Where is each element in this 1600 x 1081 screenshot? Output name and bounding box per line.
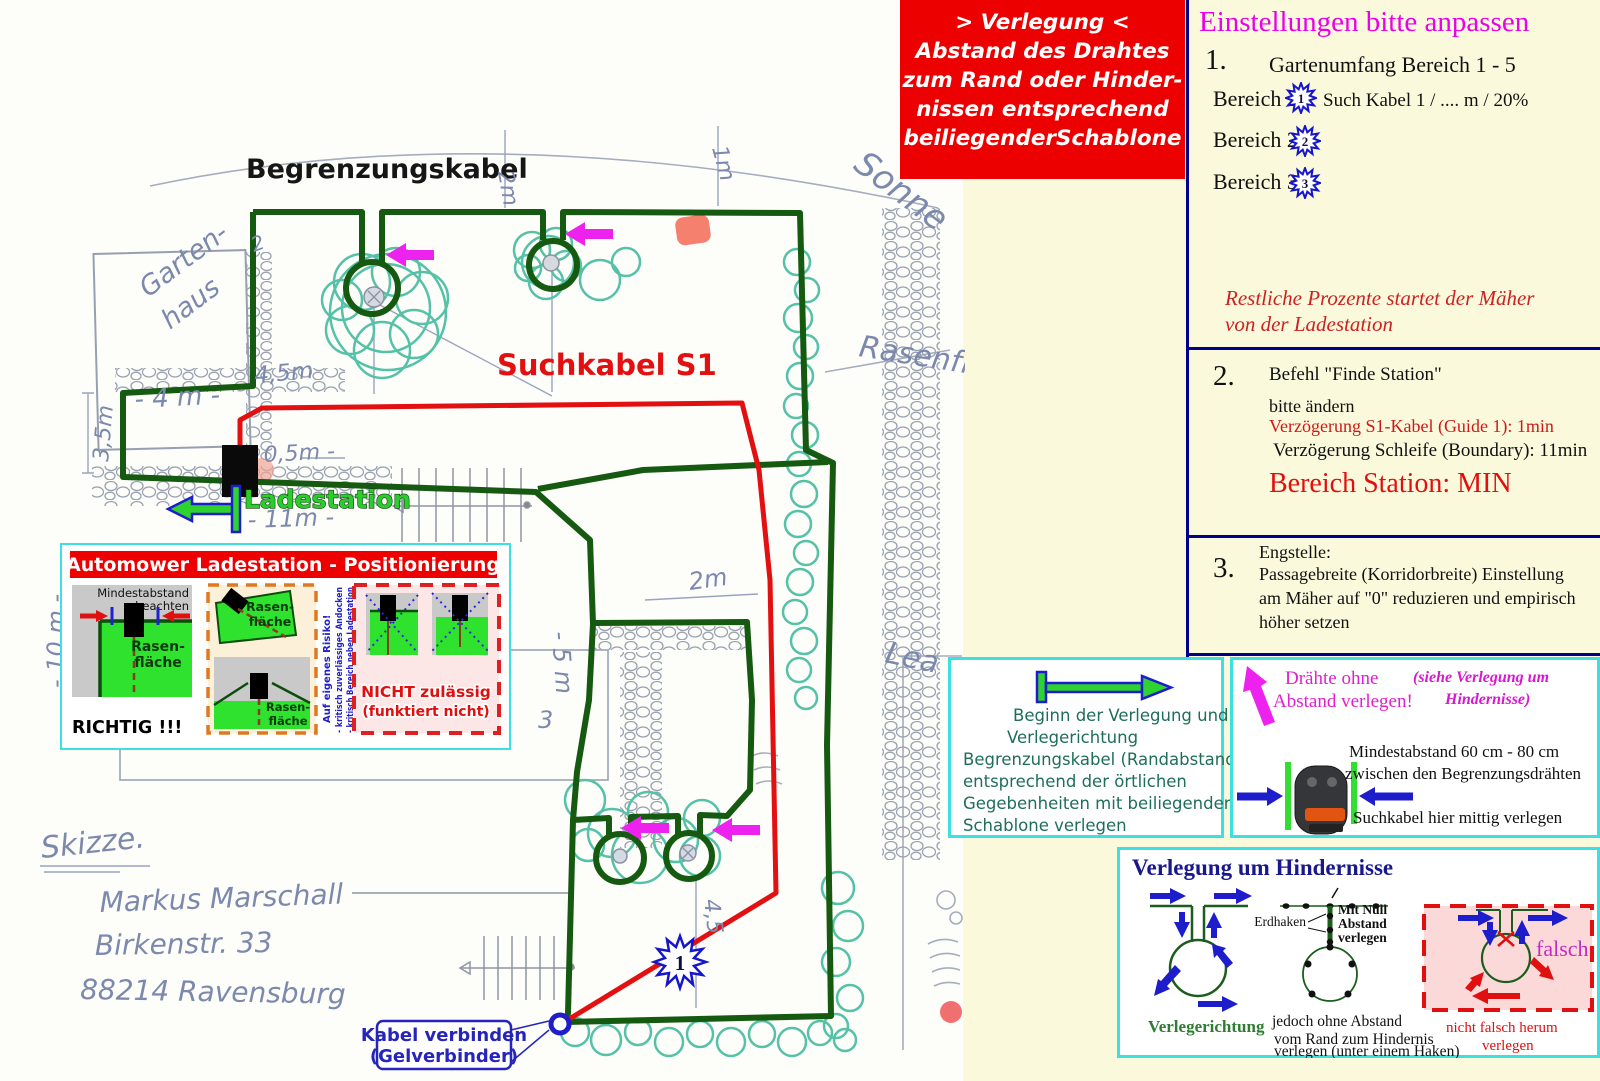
section1-number: 1. xyxy=(1205,44,1227,77)
svg-text:88214 Ravensburg: 88214 Ravensburg xyxy=(80,973,346,1011)
wirebox-aside1: (siehe Verlegung um xyxy=(1413,669,1549,687)
verlegerichtung-label: Verlegerichtung xyxy=(1148,1017,1265,1036)
svg-text:- kritisch zuverlässiges Andoc: - kritisch zuverlässiges Andocken xyxy=(335,587,345,733)
section3-line1: Engstelle: xyxy=(1259,542,1331,563)
connector-label-line1: Kabel verbinden xyxy=(361,1025,527,1046)
wirebox-suchkabel-note: Suchkabel hier mittig verlegen xyxy=(1353,808,1562,828)
start-arrow-icon xyxy=(1035,670,1175,706)
svg-text:2m: 2m xyxy=(492,169,523,208)
note-line: Abstand des Drahtes xyxy=(900,37,1185,66)
connector-label-line2: (Gelverbinder) xyxy=(370,1046,518,1067)
erdhaken-label: Erdhaken xyxy=(1254,914,1306,929)
svg-text:Rasen-: Rasen- xyxy=(266,700,310,714)
bereich1-star-icon: 1 xyxy=(1285,82,1317,114)
positioning-title: Automower Ladestation - Positionierung xyxy=(66,554,500,576)
verdict-nicht-zulaessig: NICHT zulässig xyxy=(361,683,491,701)
beginbox-line3: Begrenzungskabel (Randabstand) xyxy=(963,750,1242,769)
verdict-funktiert-nicht: (funktiert nicht) xyxy=(362,704,489,720)
wirebox-aside2: Hindernisse) xyxy=(1445,691,1530,709)
settings-section-3: 3. Engstelle: Passagebreite (Korridorbre… xyxy=(1189,538,1600,656)
pebble-paths xyxy=(92,208,940,860)
bereich2-star-icon: 2 xyxy=(1289,125,1321,157)
positioning-diagrams: Automower Ladestation - Positionierung M… xyxy=(62,545,505,744)
wirebox-magenta2: Abstand verlegen! xyxy=(1273,691,1413,713)
svg-text:nicht falsch herum: nicht falsch herum xyxy=(1446,1020,1558,1036)
obstacle-correct-diagram: Verlegerichtung xyxy=(1148,888,1265,1036)
boundary-cable-label: Begrenzungskabel xyxy=(246,154,528,185)
svg-text:- 5 m: - 5 m xyxy=(546,630,578,694)
wirebox-distance2: zwischen den Begrenzungsdrähten xyxy=(1345,764,1581,784)
settings-section-2: 2. Befehl "Finde Station" bitte ändern V… xyxy=(1189,350,1600,538)
beginbox-line4: entsprechend der örtlichen xyxy=(963,772,1187,791)
right-arrow-icon xyxy=(1237,787,1283,806)
svg-text:Rasen-: Rasen- xyxy=(246,599,294,614)
mower-image xyxy=(1295,766,1347,834)
obstacles-box: Verlegung um Hindernisse Verlegerichtung xyxy=(1117,847,1600,1058)
svg-text:Birkenstr. 33: Birkenstr. 33 xyxy=(95,926,273,962)
svg-text:jedoch ohne Abstand: jedoch ohne Abstand xyxy=(1271,1013,1402,1030)
falsch-label: falsch xyxy=(1536,936,1589,961)
svg-text:3: 3 xyxy=(1302,176,1309,191)
up-left-arrow-icon xyxy=(1243,666,1275,726)
section3-number: 3. xyxy=(1213,552,1235,585)
section2-bereich-station: Bereich Station: MIN xyxy=(1269,468,1512,500)
wire-spacing-box: Drähte ohne Abstand verlegen! (siehe Ver… xyxy=(1230,657,1600,838)
svg-text:Markus Marschall: Markus Marschall xyxy=(99,878,344,919)
settings-section-1: Einstellungen bitte anpassen 1. Gartenum… xyxy=(1189,0,1600,350)
beginbox-line5: Gegebenheiten mit beiliegender xyxy=(963,794,1231,813)
obstacles-title: Verlegung um Hindernisse xyxy=(1132,855,1393,881)
left-arrow-icon xyxy=(1359,787,1413,806)
section1-heading: Gartenumfang Bereich 1 - 5 xyxy=(1269,52,1516,78)
scanned-garden-plan: 1 Kabel verbinden (Gelverbinder) Begrenz… xyxy=(0,0,1600,1081)
garden-sketch: 1 Kabel verbinden (Gelverbinder) Begrenz… xyxy=(0,0,965,1081)
verdict-richtig: RICHTIG !!! xyxy=(72,718,182,738)
beginbox-line1: Beginn der Verlegung und xyxy=(1013,706,1229,725)
svg-text:Mit Null: Mit Null xyxy=(1338,902,1387,917)
section2-heading: Befehl "Finde Station" xyxy=(1269,364,1442,386)
beginbox-line2: Verlegerichtung xyxy=(1007,728,1138,747)
wirebox-magenta1: Drähte ohne xyxy=(1285,668,1378,690)
svg-text:2: 2 xyxy=(1302,134,1309,149)
svg-text:verlegen (unter einem Haken): verlegen (unter einem Haken) xyxy=(1274,1043,1459,1058)
bereich2-label: Bereich 2 xyxy=(1213,127,1298,153)
cable-connector: Kabel verbinden (Gelverbinder) xyxy=(361,1015,569,1069)
stairs-lower xyxy=(352,893,575,1000)
bereich1-value: Such Kabel 1 / .... m / 20% xyxy=(1323,90,1528,112)
settings-panel: Einstellungen bitte anpassen 1. Gartenum… xyxy=(1186,0,1600,659)
settings-title: Einstellungen bitte anpassen xyxy=(1199,6,1529,39)
svg-text:3: 3 xyxy=(538,706,553,734)
svg-text:4,5: 4,5 xyxy=(698,898,727,936)
svg-text:Skizze.: Skizze. xyxy=(39,820,146,866)
svg-text:fläche: fläche xyxy=(268,714,307,728)
svg-text:fläche: fläche xyxy=(249,614,292,629)
obstacles-diagrams: Verlegerichtung Erdhaken xyxy=(1120,884,1597,1058)
note-line: > Verlegung < xyxy=(900,8,1185,37)
verlegung-note: > Verlegung < Abstand des Drahtes zum Ra… xyxy=(900,0,1185,179)
section2-delay-guide: Verzögerung S1-Kabel (Guide 1): 1min xyxy=(1269,416,1554,437)
svg-text:- 11m -: - 11m - xyxy=(247,503,334,534)
restliche-prozente-note-line2: von der Ladestation xyxy=(1225,312,1393,337)
stairs-upper xyxy=(393,468,532,542)
svg-text:- 4 m -: - 4 m - xyxy=(134,381,221,415)
search-cable-label: Suchkabel S1 xyxy=(497,348,717,382)
svg-text:1: 1 xyxy=(1298,91,1305,106)
wirebox-distance1: Mindestabstand 60 cm - 80 cm xyxy=(1349,742,1559,762)
svg-text:Rasen-: Rasen- xyxy=(131,639,185,655)
svg-text:fläche: fläche xyxy=(134,655,182,671)
obstacle-wrong-diagram: falsch nicht falsch herum verlegen xyxy=(1424,906,1592,1054)
star-badge-1: 1 xyxy=(654,936,706,988)
section3-line3: am Mäher auf "0" reduzieren und empirisc… xyxy=(1259,588,1576,609)
bereich3-star-icon: 3 xyxy=(1289,167,1321,199)
restliche-prozente-note-line1: Restliche Prozente startet der Mäher xyxy=(1225,286,1534,311)
svg-text:1m: 1m xyxy=(706,143,739,184)
svg-text:Abstand: Abstand xyxy=(1338,916,1387,931)
svg-text:4,5m: 4,5m xyxy=(253,358,314,389)
section2-number: 2. xyxy=(1213,360,1235,393)
beginbox-line6: Schablone verlegen xyxy=(963,816,1127,835)
note-line: beiliegenderSchablone xyxy=(900,124,1185,153)
svg-text:2m: 2m xyxy=(687,563,729,596)
bereich3-label: Bereich 3 xyxy=(1213,169,1298,195)
section3-line2: Passagebreite (Korridorbreite) Einstellu… xyxy=(1259,564,1564,585)
laying-start-box: Beginn der Verlegung und Verlegerichtung… xyxy=(948,657,1224,838)
positioning-box: Automower Ladestation - Positionierung M… xyxy=(60,543,511,750)
positioning-risky-panel: Rasen- fläche Rasen- fläche Auf eigenes … xyxy=(208,585,356,733)
svg-text:Mindestabstand: Mindestabstand xyxy=(97,586,189,600)
note-line: nissen entsprechend xyxy=(900,95,1185,124)
section2-sub: bitte ändern xyxy=(1269,396,1354,417)
section2-delay-boundary: Verzögerung Schleife (Boundary): 11min xyxy=(1273,440,1587,462)
svg-text:verlegen: verlegen xyxy=(1482,1038,1534,1054)
note-line: zum Rand oder Hinder- xyxy=(900,66,1185,95)
svg-text:0,5m -: 0,5m - xyxy=(263,439,336,468)
svg-text:verlegen: verlegen xyxy=(1338,930,1387,945)
positioning-forbidden-panel: NICHT zulässig (funktiert nicht) xyxy=(354,585,499,733)
svg-text:3,5m: 3,5m xyxy=(89,404,119,462)
star-badge-number: 1 xyxy=(675,951,686,975)
positioning-correct-panel: Mindestabstand beachten Rasen- fläche RI… xyxy=(72,585,192,738)
section3-line4: höher setzen xyxy=(1259,612,1349,633)
svg-text:Auf eigenes Risiko!: Auf eigenes Risiko! xyxy=(322,615,333,724)
